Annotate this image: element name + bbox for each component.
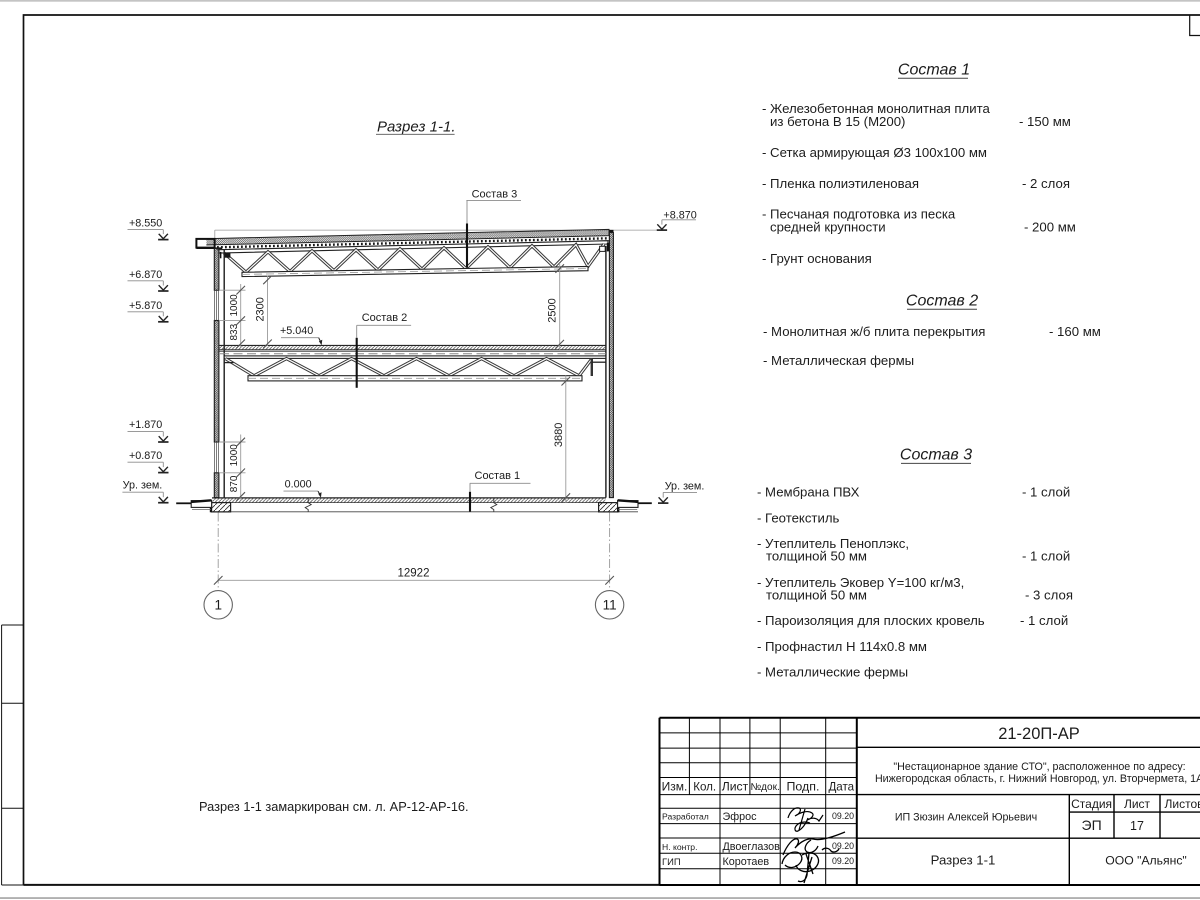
svg-text:толщиной 50 мм: толщиной 50 мм xyxy=(766,549,867,564)
svg-text:ГИП: ГИП xyxy=(662,856,681,867)
svg-text:2300: 2300 xyxy=(255,297,267,321)
svg-text:Изм.: Изм. xyxy=(662,780,688,794)
svg-text:- 2 слоя: - 2 слоя xyxy=(1022,176,1070,191)
svg-text:Двоеглазов: Двоеглазов xyxy=(723,841,781,853)
svg-text:- 150 мм: - 150 мм xyxy=(1019,114,1071,129)
svg-text:1: 1 xyxy=(214,598,222,613)
svg-text:17: 17 xyxy=(1130,819,1144,833)
svg-text:833: 833 xyxy=(229,323,240,340)
svg-text:09.20: 09.20 xyxy=(832,841,854,851)
svg-text:- Металлическая фермы: - Металлическая фермы xyxy=(763,353,914,368)
svg-text:11: 11 xyxy=(603,598,617,613)
svg-text:1000: 1000 xyxy=(229,294,240,317)
svg-text:Подп.: Подп. xyxy=(787,780,820,794)
svg-text:Листов: Листов xyxy=(1165,797,1200,811)
svg-text:№док.: №док. xyxy=(750,782,779,793)
svg-text:- Монолитная ж/б плита перекры: - Монолитная ж/б плита перекрытия xyxy=(763,324,985,339)
svg-text:- Геотекстиль: - Геотекстиль xyxy=(757,511,840,526)
svg-text:Состав 1: Состав 1 xyxy=(898,62,970,79)
svg-text:Состав 3: Состав 3 xyxy=(472,188,518,200)
svg-text:- 1 слой: - 1 слой xyxy=(1022,549,1070,564)
svg-text:средней крупности: средней крупности xyxy=(770,220,886,235)
svg-text:Коротаев: Коротаев xyxy=(723,856,770,868)
svg-text:+5.870: +5.870 xyxy=(129,300,162,312)
svg-text:Состав 1: Состав 1 xyxy=(475,470,521,482)
svg-text:21-20П-АР: 21-20П-АР xyxy=(998,725,1080,743)
svg-text:Лист: Лист xyxy=(722,780,749,794)
svg-text:Разрез 1-1: Разрез 1-1 xyxy=(931,852,996,867)
svg-text:- 1 слой: - 1 слой xyxy=(1022,485,1070,500)
svg-text:Ур. зем.: Ур. зем. xyxy=(123,480,163,492)
svg-text:ООО "Альянс": ООО "Альянс" xyxy=(1105,853,1187,867)
svg-text:- Пароизоляция для плоских кро: - Пароизоляция для плоских кровель xyxy=(757,613,985,628)
svg-text:"Нестационарное здание СТО", р: "Нестационарное здание СТО", расположенн… xyxy=(893,761,1185,773)
svg-text:Разрез 1-1 замаркирован см. л.: Разрез 1-1 замаркирован см. л. АР-12-АР-… xyxy=(199,799,469,814)
svg-text:Кол.: Кол. xyxy=(693,781,716,794)
svg-text:- 200 мм: - 200 мм xyxy=(1024,220,1076,235)
svg-text:2500: 2500 xyxy=(547,298,559,322)
svg-text:09.20: 09.20 xyxy=(832,811,854,821)
svg-text:- 1 слой: - 1 слой xyxy=(1020,613,1068,628)
svg-text:из бетона В 15 (М200): из бетона В 15 (М200) xyxy=(770,114,905,129)
svg-text:- Мембрана ПВХ: - Мембрана ПВХ xyxy=(757,485,860,500)
svg-text:1000: 1000 xyxy=(229,444,240,467)
svg-text:+5.040: +5.040 xyxy=(280,325,313,337)
svg-text:- 160 мм: - 160 мм xyxy=(1049,324,1101,339)
svg-text:Разработал: Разработал xyxy=(662,812,709,822)
svg-text:- Грунт основания: - Грунт основания xyxy=(762,251,872,266)
svg-text:Стадия: Стадия xyxy=(1071,797,1112,811)
svg-text:ИП Зюзин Алексей Юрьевич: ИП Зюзин Алексей Юрьевич xyxy=(895,812,1037,824)
svg-text:+8.550: +8.550 xyxy=(129,218,162,230)
svg-text:3880: 3880 xyxy=(553,423,565,447)
svg-text:+0.870: +0.870 xyxy=(129,450,162,462)
svg-text:+6.870: +6.870 xyxy=(129,269,162,281)
svg-text:Нижегородская область, г. Нижн: Нижегородская область, г. Нижний Новгоро… xyxy=(875,773,1200,785)
svg-text:09.20: 09.20 xyxy=(832,856,854,866)
svg-text:- Сетка армирующая Ø3 100х100: - Сетка армирующая Ø3 100х100 мм xyxy=(762,145,987,160)
svg-text:12922: 12922 xyxy=(398,568,430,580)
svg-text:Дата: Дата xyxy=(828,781,854,794)
svg-text:Эфрос: Эфрос xyxy=(723,811,758,823)
svg-text:Н. контр.: Н. контр. xyxy=(662,842,697,852)
svg-text:Состав 3: Состав 3 xyxy=(900,447,972,464)
svg-text:870: 870 xyxy=(229,475,240,492)
svg-text:ЭП: ЭП xyxy=(1082,817,1102,833)
svg-text:Разрез 1-1.: Разрез 1-1. xyxy=(377,119,456,136)
svg-text:Лист: Лист xyxy=(1124,797,1151,811)
svg-text:Ур. зем.: Ур. зем. xyxy=(665,480,705,492)
svg-text:толщиной 50 мм: толщиной 50 мм xyxy=(766,588,867,603)
svg-text:Состав 2: Состав 2 xyxy=(906,293,978,310)
svg-text:+1.870: +1.870 xyxy=(129,419,162,431)
svg-text:0.000: 0.000 xyxy=(285,479,312,491)
svg-text:- 3 слоя: - 3 слоя xyxy=(1025,588,1073,603)
svg-text:- Профнастил Н 114х0.8 мм: - Профнастил Н 114х0.8 мм xyxy=(757,639,927,654)
svg-text:Состав 2: Состав 2 xyxy=(362,312,408,324)
svg-text:- Пленка полиэтиленовая: - Пленка полиэтиленовая xyxy=(762,176,919,191)
svg-text:- Металлические фермы: - Металлические фермы xyxy=(757,665,908,680)
